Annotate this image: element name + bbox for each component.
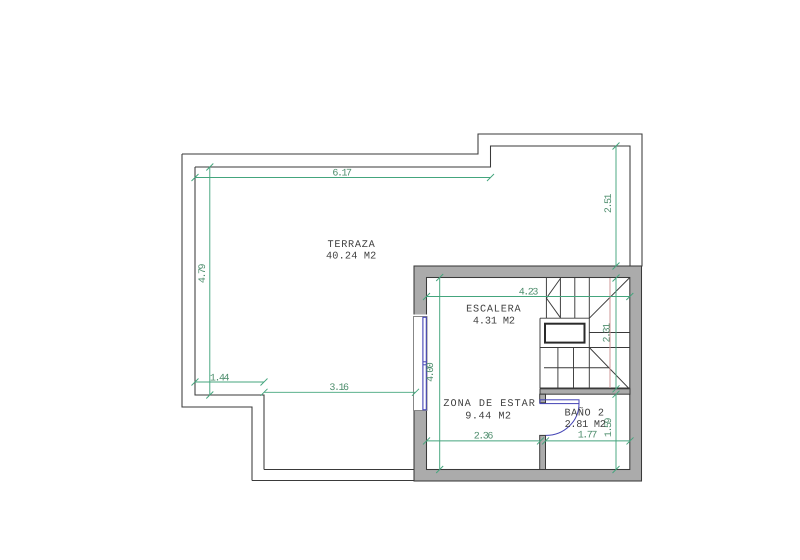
svg-text:TERRAZA: TERRAZA bbox=[327, 240, 375, 251]
svg-text:4.00: 4.00 bbox=[426, 362, 437, 382]
svg-text:4.79: 4.79 bbox=[198, 263, 209, 283]
svg-text:40.24 M2: 40.24 M2 bbox=[326, 252, 377, 263]
svg-text:1.59: 1.59 bbox=[604, 417, 615, 437]
svg-text:3.16: 3.16 bbox=[329, 383, 349, 394]
svg-text:2.81 M2: 2.81 M2 bbox=[565, 420, 606, 431]
svg-text:1.77: 1.77 bbox=[578, 431, 598, 442]
svg-text:9.44 M2: 9.44 M2 bbox=[465, 411, 511, 422]
svg-text:4.23: 4.23 bbox=[519, 288, 539, 299]
svg-text:BAÑO 2: BAÑO 2 bbox=[565, 407, 605, 420]
svg-text:1.44: 1.44 bbox=[210, 374, 230, 385]
svg-text:ESCALERA: ESCALERA bbox=[466, 305, 521, 316]
svg-text:6.17: 6.17 bbox=[332, 169, 352, 180]
svg-text:2.51: 2.51 bbox=[604, 193, 615, 213]
svg-text:4.31 M2: 4.31 M2 bbox=[473, 316, 515, 327]
svg-text:ZONA DE ESTAR: ZONA DE ESTAR bbox=[443, 399, 535, 410]
svg-text:2.36: 2.36 bbox=[474, 431, 494, 442]
svg-text:2.31: 2.31 bbox=[603, 323, 614, 343]
